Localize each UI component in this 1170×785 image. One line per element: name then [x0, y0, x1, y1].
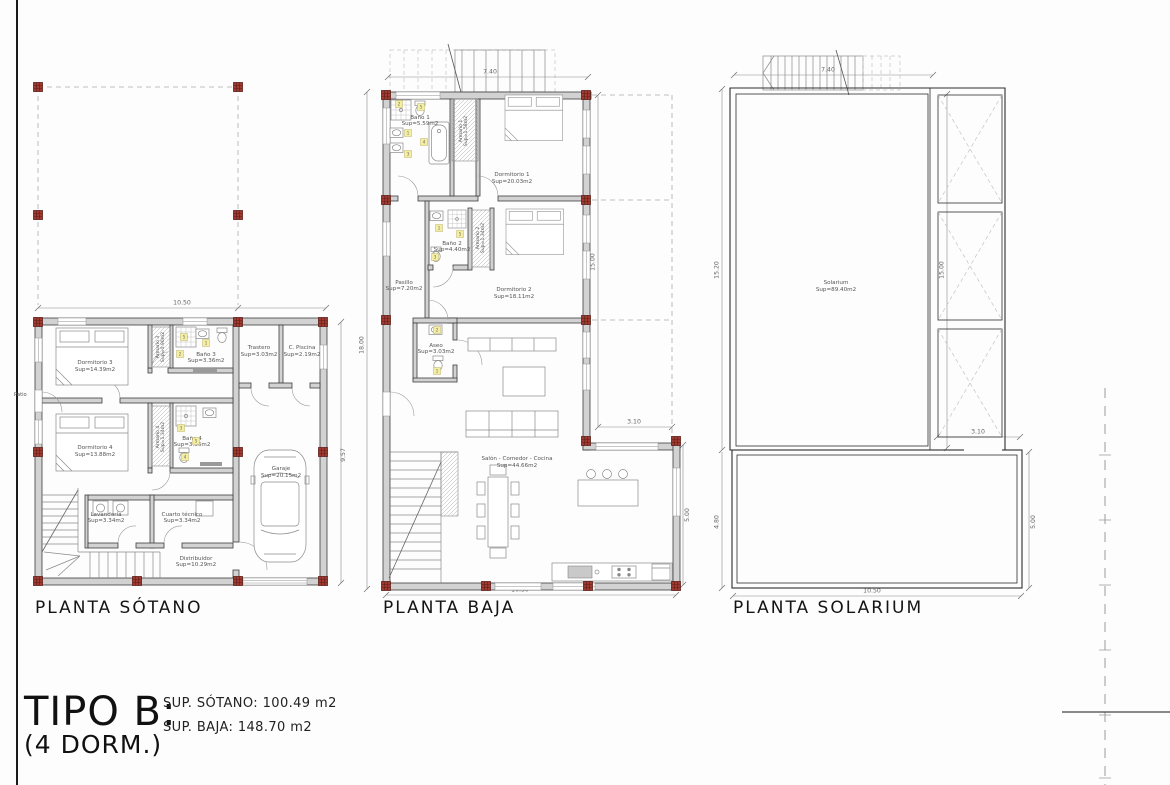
bed-dormitorio2: [506, 209, 564, 255]
column-marker: [582, 437, 591, 446]
baja-dimensions: 7.40 18.00 15.00 3.10 5.00 10.30: [359, 69, 692, 599]
fixture-key-number: 4: [184, 455, 187, 460]
room-area-dormitorio2: Sup=18.11m2: [494, 294, 534, 300]
room-area-dormitorio1: Sup=20.03m2: [492, 179, 532, 185]
sink-bano4: [203, 408, 216, 418]
plan-title-baja: PLANTA BAJA: [383, 598, 515, 618]
column-marker: [234, 448, 243, 457]
column-marker: [34, 83, 43, 92]
column-marker: [382, 196, 391, 205]
room-area-bano3: Sup=3.36m2: [188, 358, 225, 364]
dim-baja-left: 18.00: [359, 336, 366, 354]
column-marker: [672, 582, 681, 591]
dim-sol-inner: 15.00: [939, 261, 946, 279]
dim-sotano-height: 9.57: [340, 448, 347, 462]
dining-table: [477, 465, 519, 558]
dim-baja-right: 15.00: [590, 253, 597, 271]
room-area-armario2: Sup=1.34m2: [480, 223, 486, 253]
bathtub-bano1: [429, 122, 449, 164]
room-name-trastero: Trastero: [247, 345, 271, 351]
fixture-key-number: 5: [195, 439, 198, 444]
dim-sol-right-lower: 5.00: [1030, 515, 1037, 529]
room-area-garaje: Sup=20.15m2: [261, 473, 301, 479]
room-area-armario1: Sup=1.58m2: [463, 116, 469, 146]
baja-stairs: [389, 452, 458, 583]
room-area-cuarto-tecnico: Sup=3.34m2: [164, 518, 201, 524]
room-name-solarium: Solarium: [824, 280, 849, 286]
dim-sol-left-upper: 15.20: [714, 261, 721, 279]
dim-sol-stair: 7.40: [821, 67, 835, 74]
counter-bano4: [200, 462, 222, 466]
room-area-lavanderia: Sup=3.34m2: [88, 518, 125, 524]
fixture-key-number: 2: [179, 352, 182, 357]
room-area-distribuidor: Sup=10.29m2: [176, 562, 216, 568]
baja-porch-dashed: [592, 95, 672, 441]
dim-sotano-width: 10.50: [173, 300, 191, 307]
column-marker: [382, 582, 391, 591]
room-area-pasillo: Sup=7.20m2: [386, 286, 423, 292]
solarium-structure: [730, 88, 1022, 588]
fixture-key-number: 3: [434, 255, 437, 260]
column-marker: [382, 316, 391, 325]
column-marker: [482, 582, 491, 591]
floor-plan-drawing: 10.50 9.57: [0, 0, 1170, 785]
column-marker: [133, 577, 142, 586]
type-subtitle: (4 DORM.): [24, 730, 162, 759]
column-marker: [382, 91, 391, 100]
sink-bano2: [430, 211, 443, 221]
room-name-dormitorio2: Dormitorio 2: [496, 287, 531, 293]
fixture-key-number: 2: [398, 102, 401, 107]
bed-dormitorio1: [505, 95, 563, 141]
room-area-bano4: Sup=3.36m2: [174, 442, 211, 448]
room-name-dormitorio1: Dormitorio 1: [494, 172, 530, 178]
fixture-key-number: 1: [436, 369, 439, 374]
column-marker: [319, 448, 328, 457]
fixture-key-number: 1: [438, 226, 441, 231]
fixture-key-number: 1: [205, 341, 208, 346]
patio-label: Patio: [14, 392, 27, 398]
plan-title-solarium: PLANTA SOLARIUM: [733, 598, 923, 618]
room-name-lavanderia: Lavandería: [90, 511, 121, 518]
fixture-key-number: 3: [407, 152, 410, 157]
title-block: TIPO B: (4 DORM.) SUP. SÓTANO: 100.49 m2…: [23, 689, 337, 759]
column-marker: [234, 211, 243, 220]
bed-dormitorio4: [56, 414, 128, 471]
room-area-cuarto-piscina: Sup=2.19m2: [284, 352, 321, 358]
dim-baja-stair: 7.40: [483, 69, 497, 76]
room-area-armario3: Sup=0.90m2: [160, 332, 166, 362]
column-marker: [319, 318, 328, 327]
dim-sol-opening: 3.10: [971, 429, 985, 436]
sink-bano3: [196, 329, 209, 339]
fixture-key-number: 5: [459, 232, 462, 237]
room-area-bano1: Sup=5.59m2: [402, 121, 439, 127]
fixture-key-number: 4: [423, 140, 426, 145]
column-marker: [234, 318, 243, 327]
room-area-aseo: Sup=3.03m2: [418, 349, 455, 355]
toilet-bano3: [217, 328, 227, 343]
room-area-dormitorio4: Sup=13.88m2: [75, 452, 115, 458]
room-name-dormitorio3: Dormitorio 3: [77, 360, 113, 366]
sofa-set: [466, 338, 558, 437]
terrace-opening: [964, 447, 1002, 454]
column-marker: [582, 316, 591, 325]
plan-title-sotano: PLANTA SÓTANO: [35, 596, 203, 618]
column-marker: [672, 437, 681, 446]
room-name-garaje: Garaje: [272, 466, 291, 472]
room-name-cuarto-tecnico: Cuarto técnico: [162, 511, 203, 518]
solarium-dimensions: 7.40 15.20 15.00 3.10 4.80 5.00 10.50: [714, 67, 1038, 600]
kitchen-island: [578, 470, 638, 507]
column-marker: [319, 577, 328, 586]
plan-solarium: 7.40 15.20 15.00 3.10 4.80 5.00 10.50: [714, 50, 1038, 618]
column-marker: [582, 91, 591, 100]
bed-dormitorio3: [56, 328, 128, 385]
room-area-salon: Sup=44.66m2: [497, 463, 537, 469]
fixture-key-number: 2: [436, 328, 439, 333]
counter-bano3: [193, 369, 217, 373]
column-marker: [234, 83, 243, 92]
room-name-dormitorio4: Dormitorio 4: [77, 445, 113, 451]
fixture-key-number: 3: [180, 426, 183, 431]
surface-baja: SUP. BAJA: 148.70 m2: [163, 720, 312, 735]
baja-exterior-stair: [390, 44, 555, 96]
room-area-solarium: Sup=89.40m2: [816, 287, 856, 293]
room-area-dormitorio3: Sup=14.39m2: [75, 367, 115, 373]
fixture-key-number: 5: [183, 335, 186, 340]
drawing-sheet: 10.50 9.57: [0, 0, 1170, 785]
dim-sol-left-lower: 4.80: [714, 515, 721, 529]
room-area-armario4: Sup=1.34m2: [160, 422, 166, 452]
baja-furniture: [389, 95, 672, 583]
kitchen-counter: [552, 563, 672, 581]
column-marker: [582, 196, 591, 205]
column-marker: [34, 318, 43, 327]
fixture-key-number: 5: [420, 105, 423, 110]
shower-bano4: [176, 406, 196, 426]
shower-bano2: [448, 210, 466, 228]
sink2-bano1: [390, 143, 403, 153]
column-marker: [234, 577, 243, 586]
column-marker: [34, 577, 43, 586]
surface-sotano: SUP. SÓTANO: 100.49 m2: [163, 695, 337, 711]
dim-baja-terrace-w: 3.10: [627, 419, 641, 426]
sheet-frame: [17, 0, 1170, 785]
column-marker: [584, 582, 593, 591]
dim-baja-terrace-h: 5.00: [684, 508, 691, 522]
solarium-labels: Solarium Sup=89.40m2: [816, 280, 856, 293]
sotano-footprint-dashed: [38, 87, 238, 305]
fixture-key-number: 1: [407, 131, 410, 136]
room-area-trastero: Sup=3.03m2: [241, 352, 278, 358]
column-marker: [34, 448, 43, 457]
room-name-salon: Salón - Comedor - Cocina: [481, 455, 552, 462]
room-area-bano2: Sup=4.40m2: [434, 247, 471, 253]
column-marker: [34, 211, 43, 220]
type-title: TIPO B:: [23, 689, 176, 735]
sink1-bano1: [390, 128, 403, 138]
room-name-cuarto-piscina: C. Piscina: [289, 345, 316, 351]
